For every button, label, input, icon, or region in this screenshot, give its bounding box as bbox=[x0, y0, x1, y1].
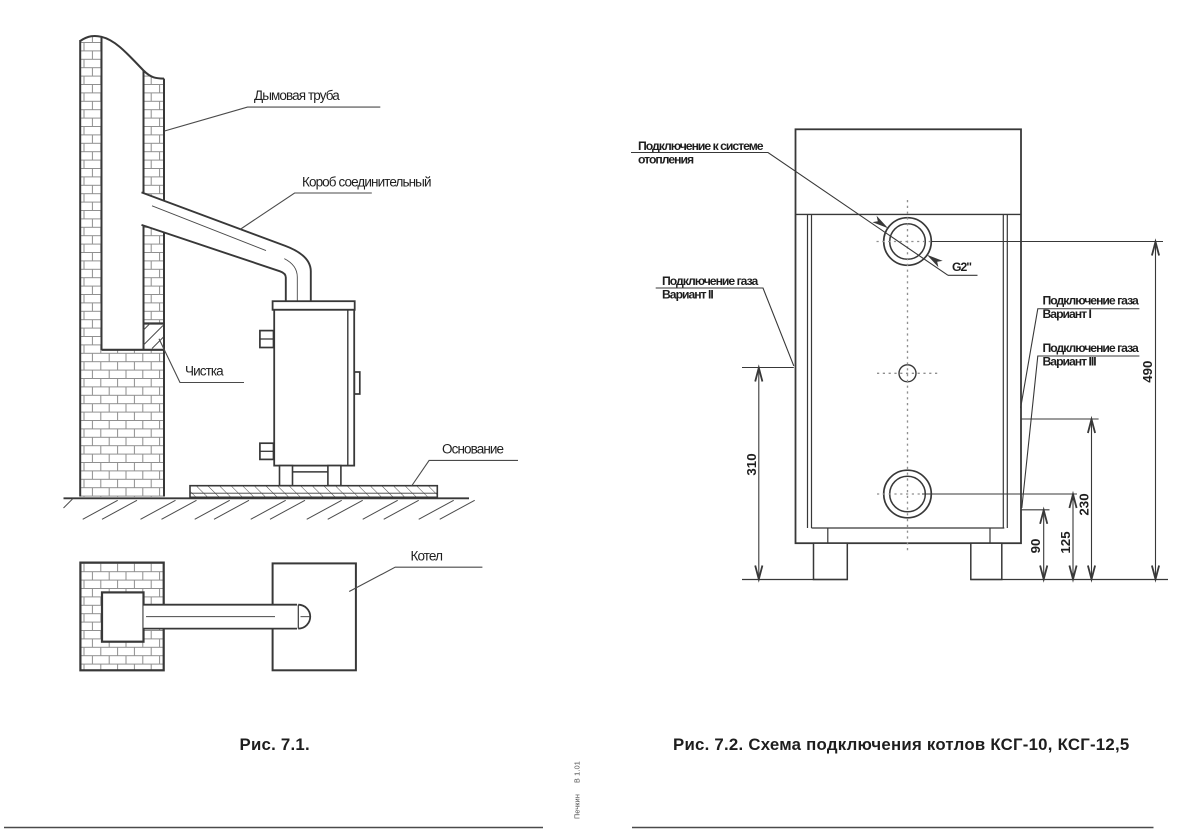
svg-text:90: 90 bbox=[1028, 539, 1043, 554]
svg-text:Печкин В 1.01: Печкин В 1.01 bbox=[573, 761, 582, 819]
svg-text:Подключение газа: Подключение газа bbox=[1043, 294, 1139, 308]
svg-text:Котел: Котел bbox=[411, 549, 443, 564]
svg-text:Короб соединительный: Короб соединительный bbox=[302, 175, 431, 190]
svg-text:отопления: отопления bbox=[638, 153, 694, 167]
svg-text:Рис. 7.1.: Рис. 7.1. bbox=[240, 735, 310, 754]
svg-text:Вариант II: Вариант II bbox=[662, 288, 713, 302]
svg-text:230: 230 bbox=[1077, 493, 1092, 515]
svg-text:Чистка: Чистка bbox=[185, 364, 224, 379]
svg-text:Основание: Основание bbox=[442, 442, 504, 457]
svg-text:G2": G2" bbox=[952, 260, 971, 274]
svg-text:Рис. 7.2. Схема подключения ко: Рис. 7.2. Схема подключения котлов КСГ-1… bbox=[673, 735, 1129, 754]
svg-text:310: 310 bbox=[744, 453, 759, 475]
svg-text:Подключение газа: Подключение газа bbox=[662, 274, 758, 288]
svg-text:490: 490 bbox=[1140, 361, 1155, 383]
svg-text:Подключение к системе: Подключение к системе bbox=[638, 139, 764, 153]
svg-text:Подключение газа: Подключение газа bbox=[1043, 341, 1139, 355]
svg-text:125: 125 bbox=[1058, 531, 1073, 554]
svg-text:Вариант III: Вариант III bbox=[1043, 355, 1097, 369]
svg-text:Дымовая труба: Дымовая труба bbox=[254, 88, 340, 103]
